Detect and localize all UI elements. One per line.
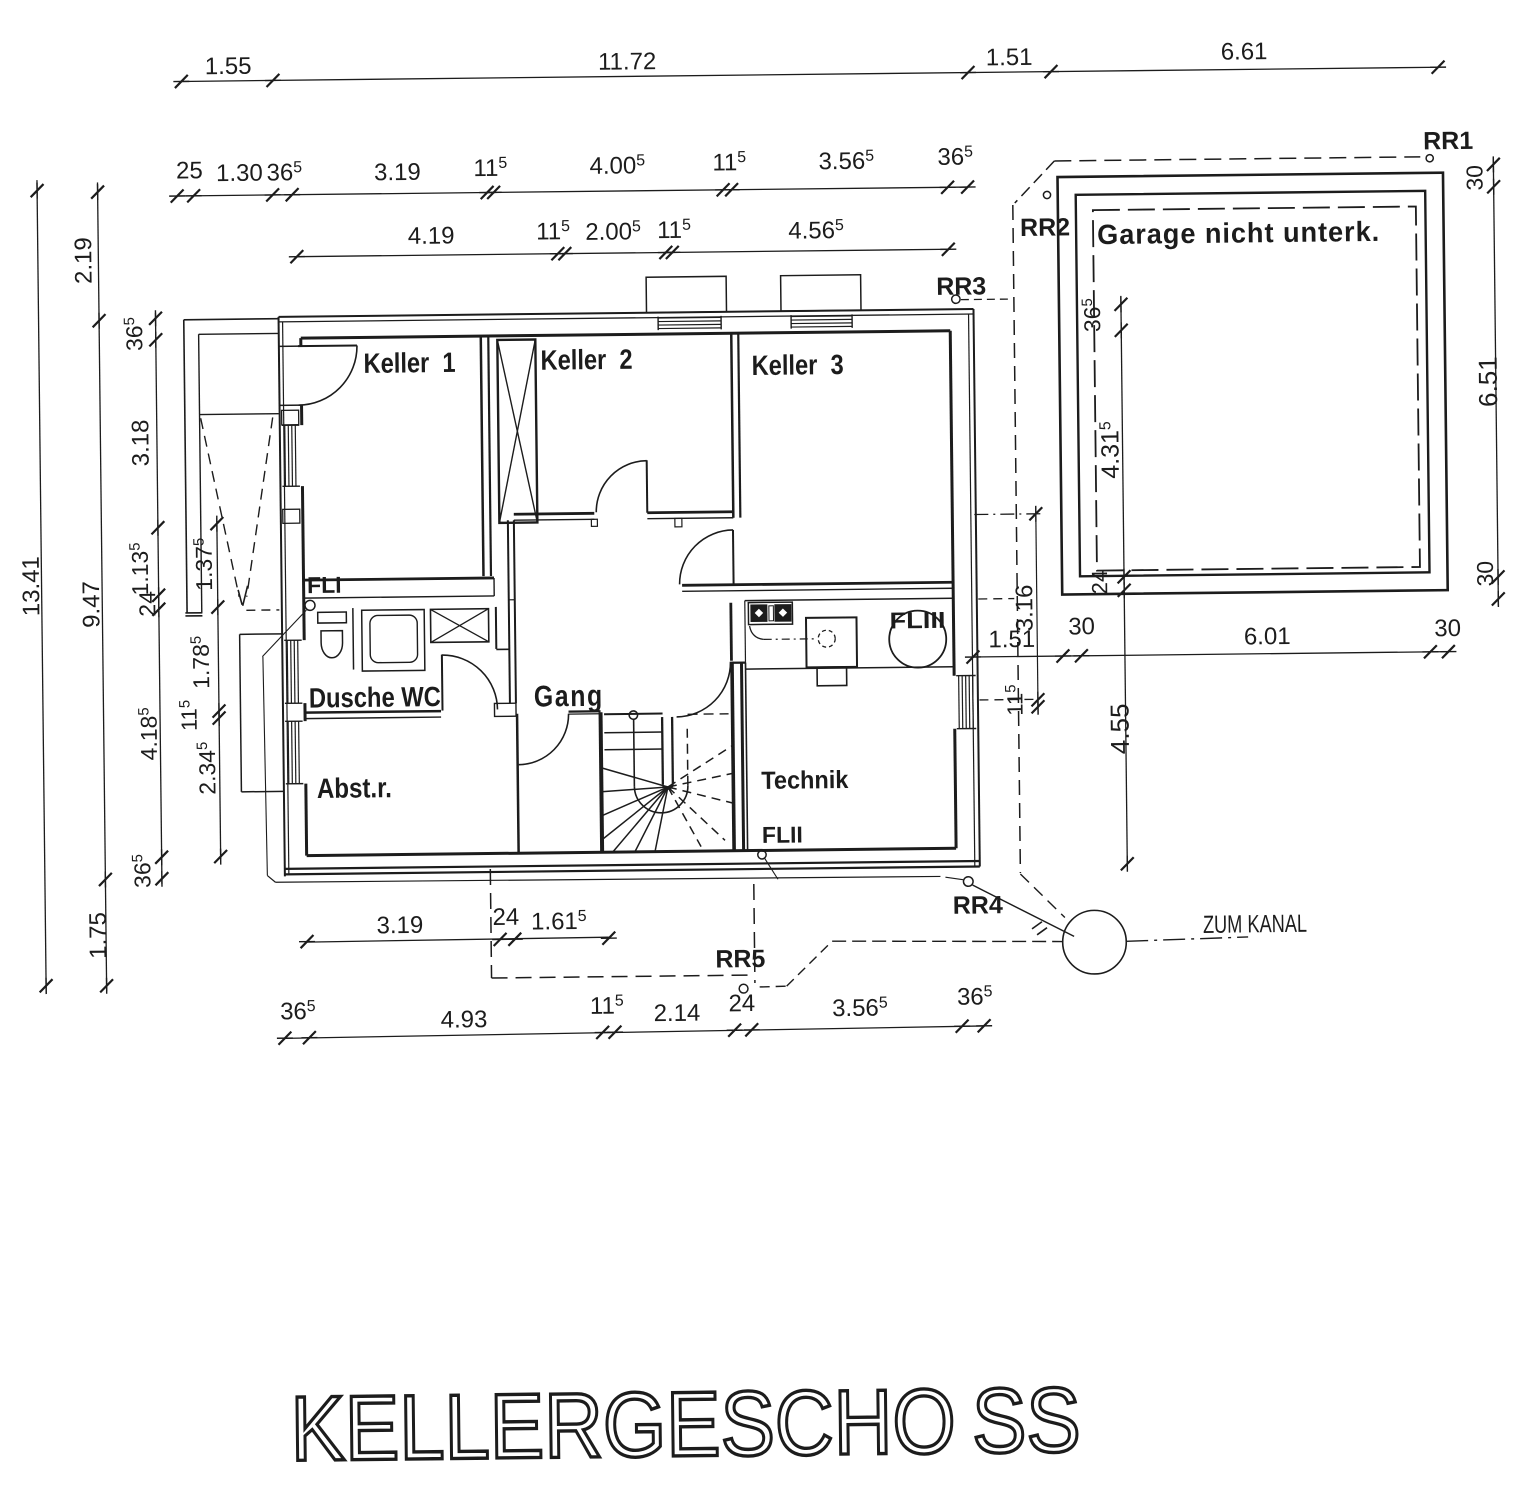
svg-text:9.47: 9.47 (78, 581, 106, 628)
svg-text:FLIII: FLIII (889, 607, 945, 634)
svg-text:30: 30 (1472, 561, 1498, 587)
svg-text:RR3: RR3 (936, 272, 986, 301)
svg-text:Keller 3: Keller 3 (751, 349, 843, 381)
svg-text:24: 24 (492, 904, 519, 931)
svg-text:24: 24 (1087, 570, 1112, 595)
svg-text:Keller 2: Keller 2 (540, 344, 632, 376)
svg-text:24: 24 (134, 591, 160, 617)
svg-text:Gang: Gang (534, 680, 604, 714)
svg-text:1.55: 1.55 (205, 53, 252, 81)
svg-text:KELLERGESCHO SS: KELLERGESCHO SS (290, 1369, 1081, 1480)
svg-text:4.19: 4.19 (408, 222, 455, 250)
svg-text:2.14: 2.14 (653, 1000, 700, 1028)
svg-text:1.75: 1.75 (85, 912, 113, 959)
svg-text:3.18: 3.18 (127, 419, 155, 466)
svg-text:Technik: Technik (761, 766, 848, 795)
svg-text:3.19: 3.19 (374, 159, 421, 187)
svg-text:Dusche WC: Dusche WC (309, 681, 441, 713)
svg-text:30: 30 (1461, 165, 1487, 191)
svg-text:30: 30 (1068, 613, 1095, 640)
svg-text:6.51: 6.51 (1473, 356, 1504, 407)
svg-text:6.61: 6.61 (1221, 38, 1268, 66)
svg-text:30: 30 (1434, 615, 1461, 642)
svg-text:6.01: 6.01 (1244, 623, 1291, 651)
svg-text:2.19: 2.19 (70, 237, 98, 284)
svg-text:13.41: 13.41 (18, 556, 46, 616)
svg-text:24: 24 (728, 990, 755, 1017)
svg-text:Garage nicht unterk.: Garage nicht unterk. (1097, 216, 1380, 250)
svg-text:FLI: FLI (307, 572, 342, 598)
svg-text:RR4: RR4 (953, 891, 1003, 920)
svg-text:4.55: 4.55 (1104, 703, 1135, 754)
svg-text:25: 25 (176, 157, 203, 184)
svg-text:RR2: RR2 (1020, 213, 1070, 242)
svg-text:3.16: 3.16 (1011, 584, 1039, 631)
svg-text:Keller 1: Keller 1 (363, 347, 455, 379)
svg-text:Abst.r.: Abst.r. (317, 772, 392, 804)
svg-text:1.30: 1.30 (216, 160, 263, 188)
svg-text:4.93: 4.93 (441, 1006, 488, 1034)
svg-text:ZUM KANAL: ZUM KANAL (1203, 910, 1307, 939)
svg-text:RR5: RR5 (715, 945, 765, 974)
svg-text:11.72: 11.72 (598, 48, 657, 76)
svg-text:FLII: FLII (762, 821, 803, 847)
svg-text:1.51: 1.51 (986, 44, 1033, 72)
svg-text:RR1: RR1 (1423, 127, 1473, 156)
svg-text:3.19: 3.19 (376, 912, 423, 940)
